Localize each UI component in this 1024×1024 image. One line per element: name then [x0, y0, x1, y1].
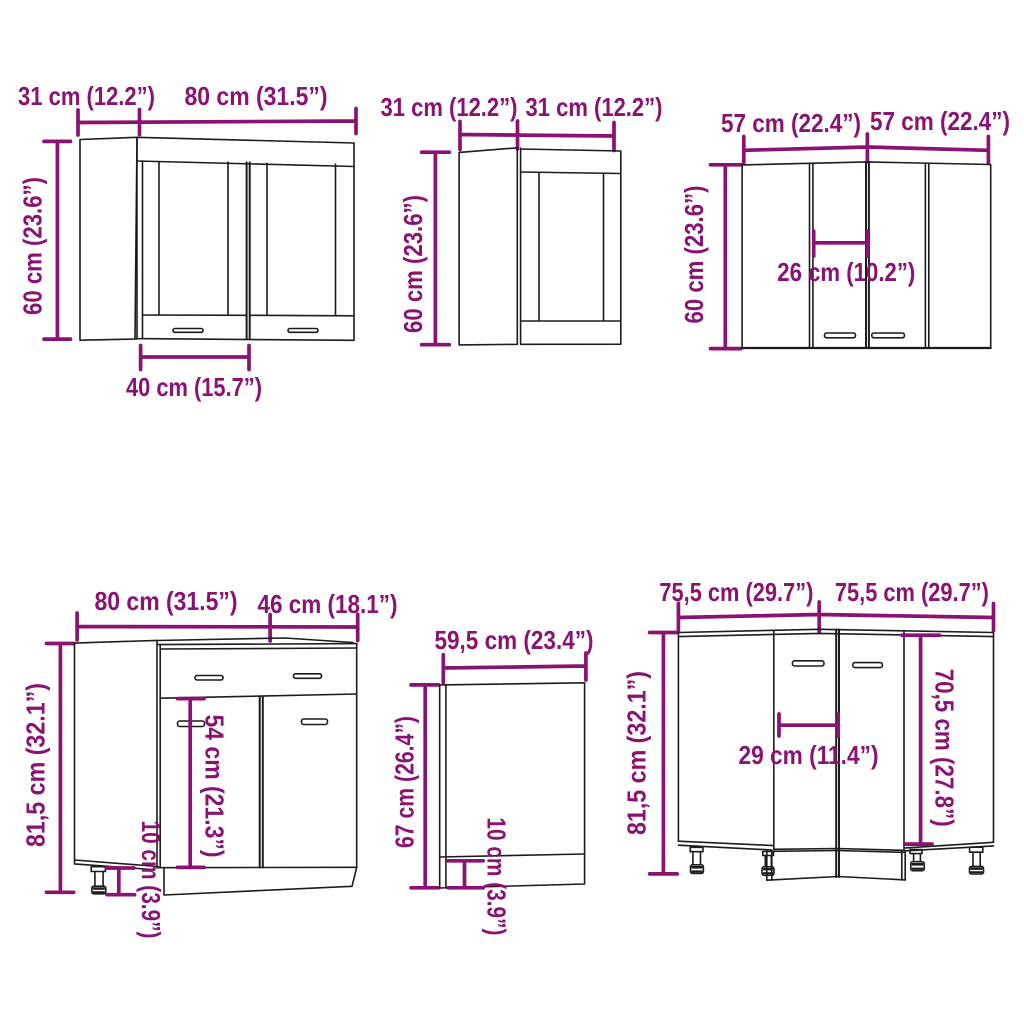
svg-text:57 cm (22.4”): 57 cm (22.4”) [870, 106, 1010, 136]
svg-text:26 cm (10.2”): 26 cm (10.2”) [777, 257, 915, 287]
svg-text:57 cm (22.4”): 57 cm (22.4”) [721, 108, 861, 138]
svg-text:81,5 cm (32.1”): 81,5 cm (32.1”) [20, 683, 50, 847]
svg-text:31 cm (12.2”): 31 cm (12.2”) [526, 92, 663, 122]
svg-text:60 cm (23.6”): 60 cm (23.6”) [679, 186, 709, 324]
svg-text:81,5 cm (32.1”): 81,5 cm (32.1”) [622, 671, 652, 835]
svg-text:60 cm (23.6”): 60 cm (23.6”) [398, 195, 428, 333]
svg-text:67 cm (26.4”): 67 cm (26.4”) [390, 716, 420, 848]
svg-text:80 cm (31.5”): 80 cm (31.5”) [95, 586, 238, 616]
svg-text:31 cm (12.2”): 31 cm (12.2”) [18, 81, 155, 111]
svg-text:75,5 cm (29.7”): 75,5 cm (29.7”) [659, 577, 813, 607]
svg-text:10 cm (3.9”): 10 cm (3.9”) [482, 817, 512, 935]
svg-text:10 cm (3.9”): 10 cm (3.9”) [136, 821, 166, 939]
svg-text:70,5 cm (27.8”): 70,5 cm (27.8”) [930, 669, 960, 827]
svg-text:80 cm (31.5”): 80 cm (31.5”) [185, 81, 328, 111]
svg-text:31 cm (12.2”): 31 cm (12.2”) [381, 92, 518, 122]
svg-text:60 cm (23.6”): 60 cm (23.6”) [18, 177, 48, 315]
svg-text:54 cm (21.3”): 54 cm (21.3”) [199, 715, 229, 858]
svg-text:46 cm (18.1”): 46 cm (18.1”) [258, 589, 398, 619]
svg-text:59,5 cm (23.4”): 59,5 cm (23.4”) [435, 625, 594, 655]
svg-text:29 cm (11.4”): 29 cm (11.4”) [739, 740, 879, 770]
svg-text:40 cm (15.7”): 40 cm (15.7”) [126, 372, 262, 402]
svg-text:75,5 cm (29.7”): 75,5 cm (29.7”) [835, 577, 989, 607]
